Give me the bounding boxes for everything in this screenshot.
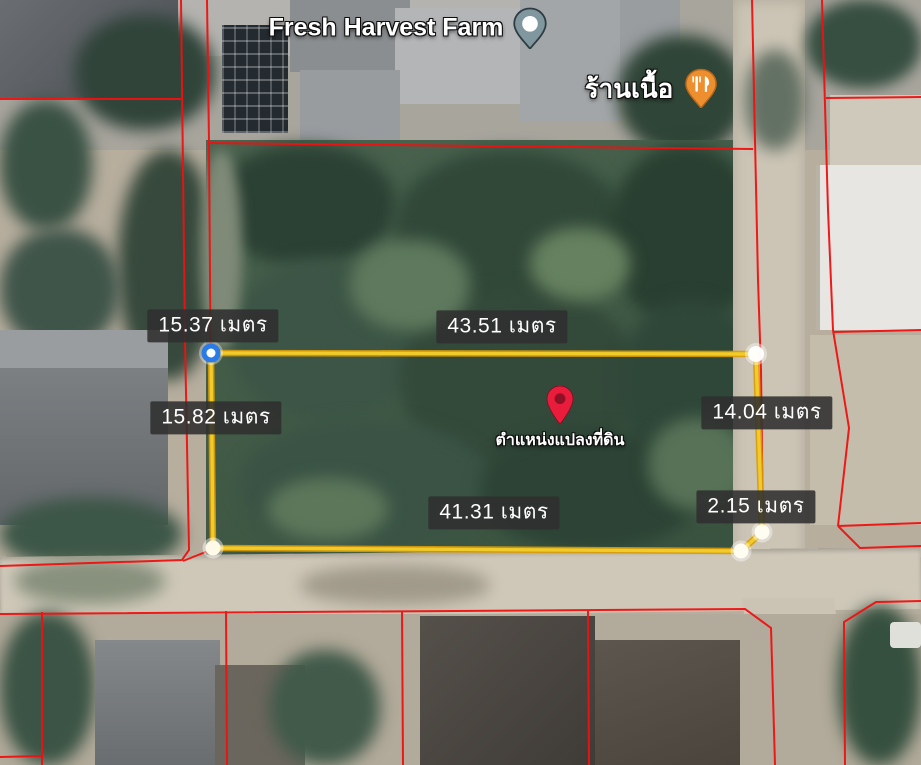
measurement-label-north: 43.51 เมตร <box>436 310 567 343</box>
satellite-map[interactable]: Fresh Harvest Farm ร้านเนื้อ ตำแหน่งแปลง… <box>0 0 921 765</box>
fresh-harvest-farm-pin-icon[interactable] <box>512 7 548 54</box>
polygon-vertex-top-left-selected[interactable] <box>199 341 223 365</box>
polygon-vertex-top-right[interactable] <box>745 343 767 365</box>
measurement-label-south: 41.31 เมตร <box>428 496 559 529</box>
land-plot-pin[interactable] <box>545 386 575 431</box>
restaurant-pin-icon[interactable] <box>683 68 719 113</box>
measurement-label-west: 15.82 เมตร <box>150 401 281 434</box>
measurement-label-east: 14.04 เมตร <box>701 396 832 429</box>
land-plot-pin-caption: ตำแหน่งแปลงที่ดิน <box>496 428 625 453</box>
measurement-label-southeast-corner: 2.15 เมตร <box>696 490 815 523</box>
poi-label-fresh-harvest-farm[interactable]: Fresh Harvest Farm <box>269 14 504 43</box>
cadastral-lines <box>0 0 921 765</box>
polygon-vertex-bottom-left[interactable] <box>203 538 224 559</box>
poi-label-butcher-shop[interactable]: ร้านเนื้อ <box>585 69 674 110</box>
measurement-label-northwest: 15.37 เมตร <box>147 309 278 342</box>
polygon-vertex-bottom-right[interactable] <box>731 541 752 562</box>
polygon-vertex-east[interactable] <box>752 522 773 543</box>
